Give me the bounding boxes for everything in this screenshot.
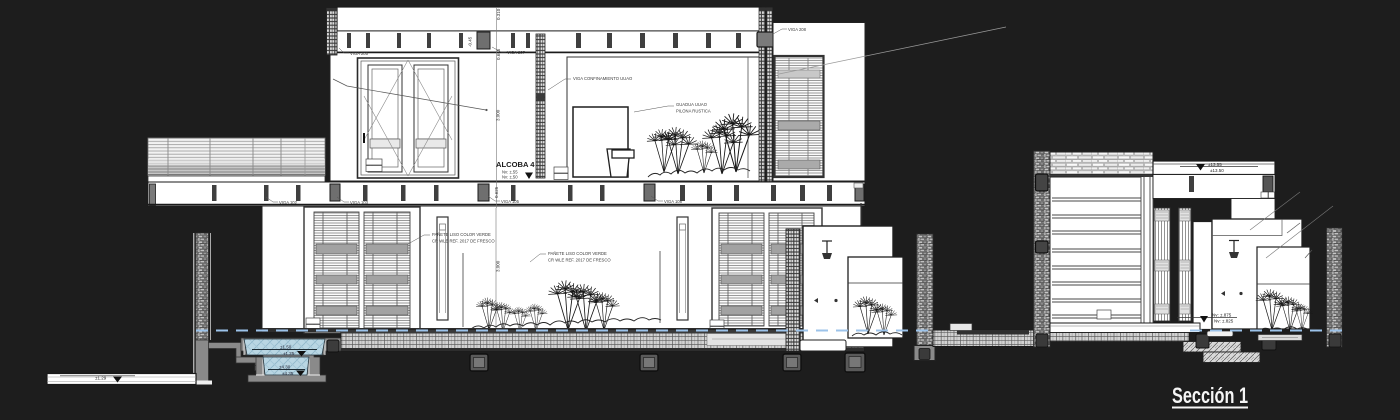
- svg-text:±1.50: ±1.50: [280, 345, 292, 350]
- svg-text:±1.25: ±1.25: [283, 351, 295, 356]
- svg-text:CR WLE REF. 2017 DE FRESCO: CR WLE REF. 2017 DE FRESCO: [432, 239, 495, 244]
- svg-text:3.000: 3.000: [496, 260, 501, 272]
- svg-text:CR WLE REF. 2017 DE FRESCO: CR WLE REF. 2017 DE FRESCO: [548, 258, 611, 263]
- svg-text:±4.30: ±4.30: [279, 365, 291, 370]
- svg-text:Sección 1: Sección 1: [1172, 384, 1248, 409]
- svg-text:Nv: ±.825: Nv: ±.825: [1214, 319, 1234, 324]
- svg-text:-0.45: -0.45: [468, 36, 473, 47]
- svg-text:3.000: 3.000: [496, 109, 501, 121]
- svg-text:VIGA 102: VIGA 102: [279, 200, 298, 205]
- svg-text:Nv: ±.875: Nv: ±.875: [1212, 313, 1232, 318]
- svg-text:ALCOBA 4: ALCOBA 4: [496, 160, 535, 169]
- svg-text:±1.29: ±1.29: [95, 376, 107, 381]
- svg-text:±13.50: ±13.50: [1210, 168, 1224, 173]
- svg-text:PAÑETE LISO COLOR VERDE: PAÑETE LISO COLOR VERDE: [548, 251, 607, 256]
- svg-text:PILONA RUSTICA: PILONA RUSTICA: [676, 109, 711, 114]
- svg-text:0.310: 0.310: [496, 8, 501, 20]
- svg-text:±4.35: ±4.35: [282, 371, 294, 376]
- svg-text:VIGA 103: VIGA 103: [350, 200, 369, 205]
- svg-text:VIGA CONFINAMIENTO UUAO: VIGA CONFINAMIENTO UUAO: [573, 76, 633, 81]
- svg-text:Nv: ±.50: Nv: ±.50: [502, 175, 518, 180]
- svg-text:0.665: 0.665: [496, 48, 501, 60]
- svg-text:VIGA 105: VIGA 105: [501, 199, 520, 204]
- svg-text:VIGA 205: VIGA 205: [350, 51, 369, 56]
- svg-text:±13.55: ±13.55: [1208, 162, 1222, 167]
- svg-text:VIGA 208: VIGA 208: [788, 27, 807, 32]
- svg-text:VIGA 207: VIGA 207: [507, 50, 526, 55]
- svg-text:VIGA 108: VIGA 108: [664, 199, 683, 204]
- svg-text:GUADUA UUAO: GUADUA UUAO: [676, 102, 708, 107]
- svg-text:0.625: 0.625: [494, 186, 499, 198]
- svg-text:PAÑETE LISO COLOR VERDE: PAÑETE LISO COLOR VERDE: [432, 232, 491, 237]
